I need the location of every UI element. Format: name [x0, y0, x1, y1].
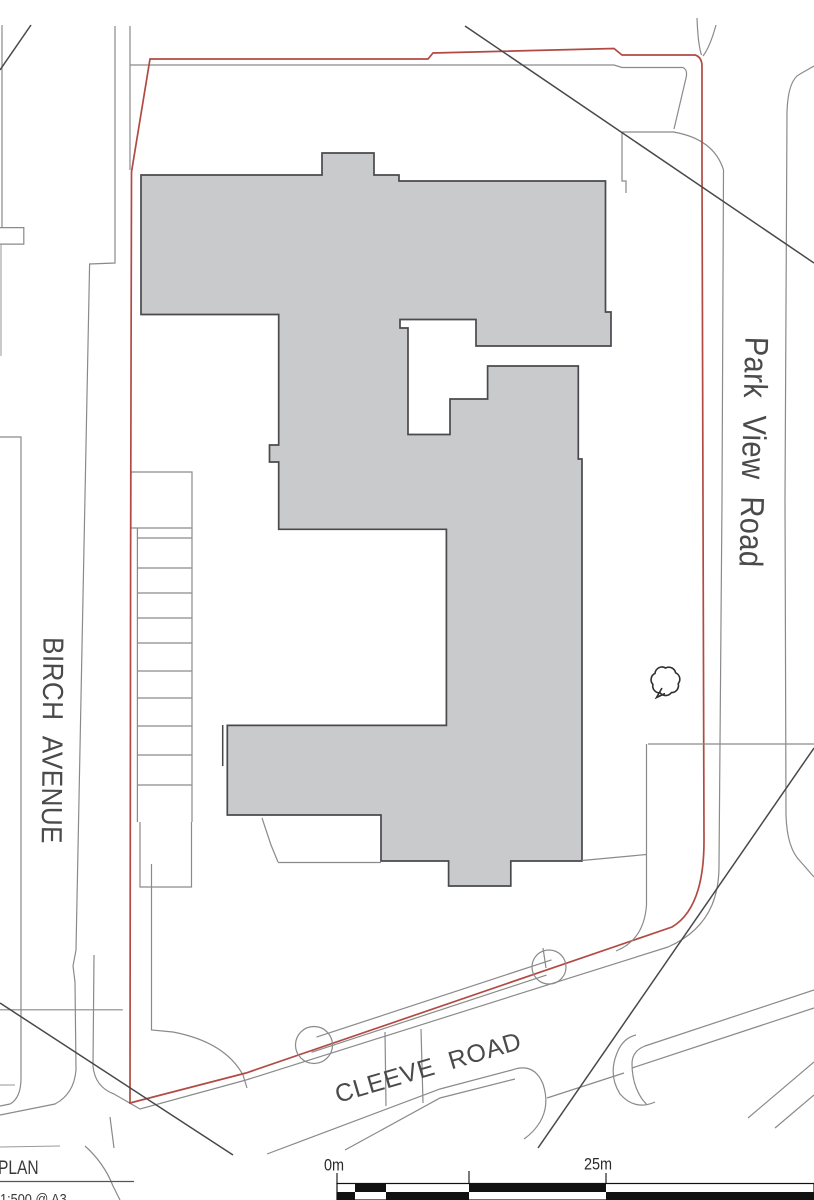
svg-text:Park View Road: Park View Road [732, 336, 775, 568]
svg-text:25m: 25m [584, 1155, 612, 1173]
svg-text:PLAN: PLAN [0, 1157, 39, 1179]
svg-text:0m: 0m [324, 1156, 344, 1174]
svg-text:BIRCH AVENUE: BIRCH AVENUE [35, 637, 69, 844]
svg-text:1:500 @ A3: 1:500 @ A3 [0, 1190, 67, 1200]
